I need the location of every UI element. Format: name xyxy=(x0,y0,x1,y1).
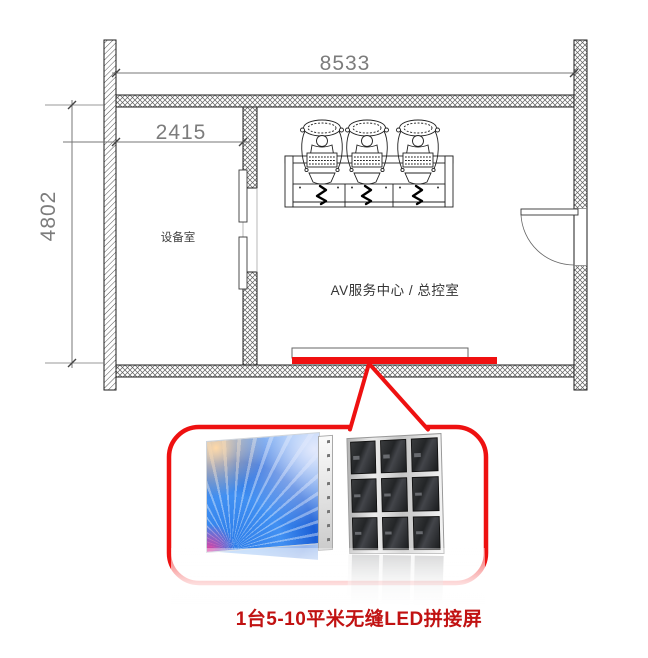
screen-enclosure-outline xyxy=(292,348,468,358)
led-cabinet-module xyxy=(382,516,409,550)
wall-top xyxy=(116,95,574,107)
equipment-room-label: 设备室 xyxy=(161,230,196,244)
caption-text: 1台5-10平米无缝LED拼接屏 xyxy=(169,604,549,631)
sliding-door-leaf xyxy=(239,170,247,222)
dimension-room-width: 2415 xyxy=(63,121,250,146)
console-right-cap xyxy=(445,156,453,207)
wall-left xyxy=(104,40,116,390)
led-cabinet-module xyxy=(381,478,408,512)
led-screen-line xyxy=(292,357,497,364)
led-cabinet-module xyxy=(351,479,377,513)
led-cabinet-module xyxy=(412,476,440,511)
dimension-room-width-label: 2415 xyxy=(156,121,207,144)
dimension-top: 8533 xyxy=(112,52,578,77)
cad-floor-plan-page: 8533 2415 4802 设备室 AV服务中心 / 总控室 xyxy=(0,0,648,658)
dimension-top-label: 8533 xyxy=(320,52,371,75)
console-left-cap xyxy=(285,156,293,207)
wall-bottom xyxy=(116,365,574,377)
led-cabinet-module xyxy=(413,516,441,550)
control-room-label: AV服务中心 / 总控室 xyxy=(331,282,460,298)
operator-console xyxy=(285,120,453,207)
swing-door xyxy=(521,208,587,266)
led-cabinet-module xyxy=(411,437,439,472)
led-cabinet-module xyxy=(350,440,376,474)
dimension-height-label: 4802 xyxy=(37,191,60,242)
door-leaf xyxy=(521,209,578,215)
led-panel-side-edge xyxy=(318,435,333,551)
reflection-fade-overlay xyxy=(171,548,485,612)
led-panel-front-image xyxy=(206,432,320,553)
door-swing-arc xyxy=(521,215,574,265)
walls xyxy=(104,40,587,390)
sliding-door-leaf xyxy=(239,237,247,289)
led-cabinet-module xyxy=(380,439,407,474)
dimension-height: 4802 xyxy=(37,100,104,368)
led-cabinet-module xyxy=(352,517,378,550)
led-panel-back-image xyxy=(346,433,444,554)
